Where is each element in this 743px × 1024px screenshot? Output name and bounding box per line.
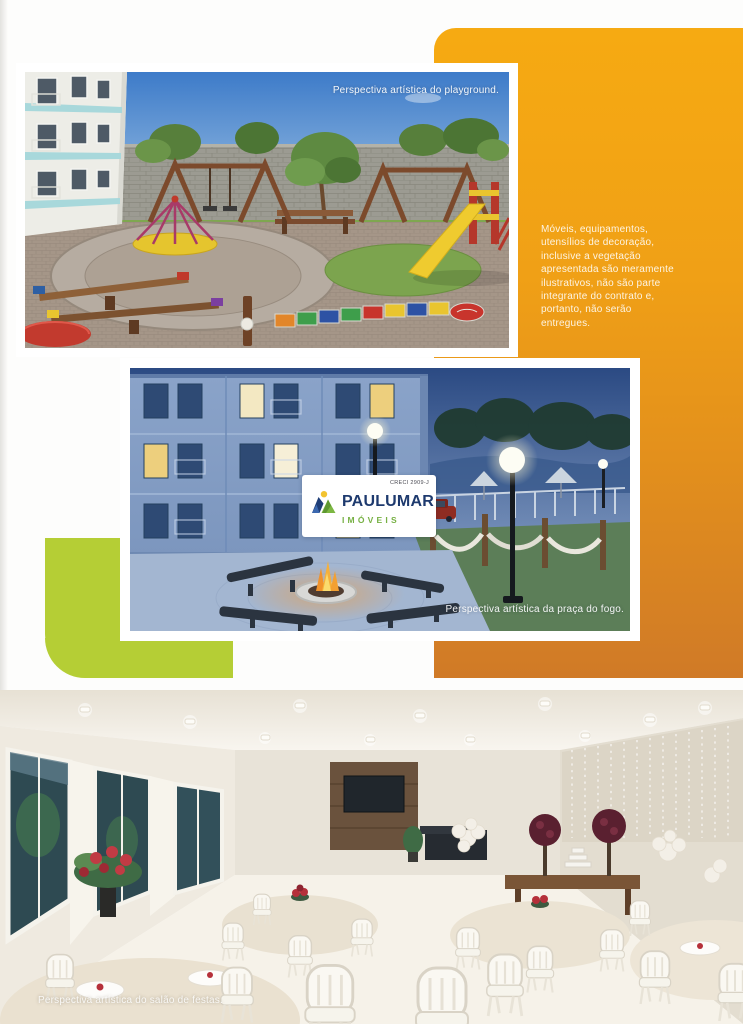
apartment-building <box>25 72 127 236</box>
disclaimer-line: ilustrativos, não são parte <box>541 277 699 290</box>
logo-segment-text: IMÓVEIS <box>342 516 436 525</box>
grass-mound <box>325 244 481 296</box>
caption-party-room: Perspectiva artística do salão de festas… <box>38 995 223 1006</box>
caption-playground: Perspectiva artística do playground. <box>333 85 499 96</box>
green-accent-shape-foot <box>45 638 233 678</box>
disclaimer-line: Móveis, equipamentos, <box>541 223 699 236</box>
disclaimer-line: utensílios de decoração, <box>541 236 699 249</box>
photo-party-room: Perspectiva artística do salão de festas… <box>0 690 743 1024</box>
disclaimer-line: apresentada são meramente <box>541 263 699 276</box>
disclaimer-line: inclusive a vegetação <box>541 250 699 263</box>
logo-brand-text: PAULUMAR <box>342 494 434 510</box>
disclaimer-line: portanto, não serão <box>541 303 699 316</box>
paulumar-logo-badge: CRECI 2909-J PAULUMAR IMÓVEIS <box>302 475 436 537</box>
playground-photo <box>25 72 509 348</box>
party-room-photo <box>0 690 743 1024</box>
caption-fire-plaza: Perspectiva artística da praça do fogo. <box>446 604 624 615</box>
disclaimer-line: entregues. <box>541 317 699 330</box>
photo-card-playground: Perspectiva artística do playground. <box>16 63 518 357</box>
disclaimer-line: integrante do contrato e, <box>541 290 699 303</box>
brochure-page: Móveis, equipamentos, utensílios de deco… <box>0 0 743 1024</box>
paulumar-logo-icon <box>310 490 338 514</box>
photo-card-fire-plaza: CRECI 2909-J PAULUMAR IMÓVEIS Perspecti <box>120 358 640 641</box>
disclaimer-text: Móveis, equipamentos, utensílios de deco… <box>541 223 699 330</box>
logo-registry-text: CRECI 2909-J <box>390 480 429 486</box>
